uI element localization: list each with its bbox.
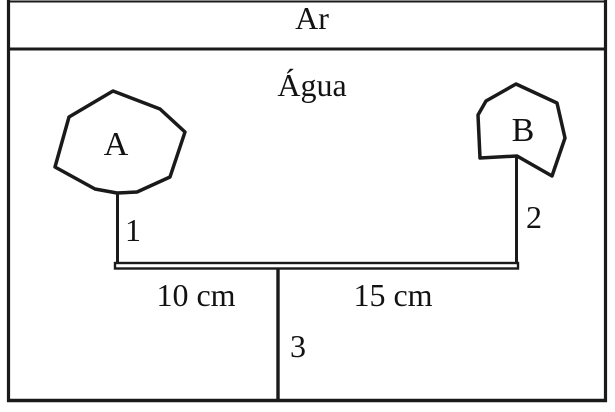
distance-right-label: 15 cm: [353, 277, 432, 313]
support-3-label: 3: [290, 328, 306, 364]
distance-left-label: 10 cm: [156, 277, 235, 313]
body-a-label: A: [104, 126, 129, 163]
body-b-label: B: [512, 112, 535, 149]
pressure-diagram: Ar Água A 1 B 2 3 10 cm 15 cm: [0, 0, 615, 412]
water-label: Água: [277, 67, 346, 103]
air-label: Ar: [295, 0, 329, 36]
string-1-label: 1: [125, 212, 141, 248]
diagram-canvas: Ar Água A 1 B 2 3 10 cm 15 cm: [0, 0, 615, 412]
string-2-label: 2: [526, 199, 542, 235]
beam: [115, 263, 518, 269]
